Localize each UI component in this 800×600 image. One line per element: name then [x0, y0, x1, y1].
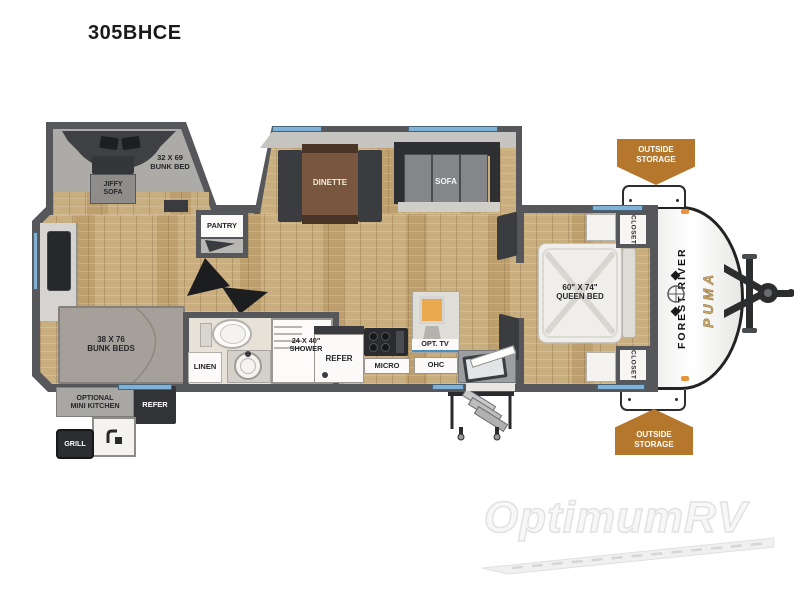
- toilet-bowl-inner: [220, 324, 246, 344]
- marker-light-top: [681, 209, 689, 214]
- sofa-cushion: [460, 154, 488, 204]
- watermark-road-icon: [478, 528, 790, 581]
- window: [33, 232, 38, 290]
- outside-storage-badge-top: OUTSIDE STORAGE: [617, 139, 695, 185]
- grill-label: GRILL: [56, 429, 94, 459]
- burner-icon: [369, 343, 378, 352]
- dinette-bench-left: [278, 150, 302, 222]
- opt-tv-label: OPT. TV: [412, 339, 458, 352]
- faucet-icon: [104, 427, 124, 447]
- linen-label: LINEN: [188, 352, 222, 383]
- sofa-label: SOFA: [430, 176, 462, 188]
- closet-top-label: CLOSET: [630, 215, 637, 244]
- outdoor-refer-label: REFER: [134, 386, 176, 424]
- nightstand: [586, 214, 616, 241]
- toilet-tank: [200, 323, 212, 347]
- closet-bottom: CLOSET: [616, 346, 650, 384]
- closet-bottom-label: CLOSET: [630, 350, 637, 379]
- queen-bed-label: 60" X 74" QUEEN BED: [544, 276, 616, 308]
- shower-drain-icon: [322, 372, 328, 378]
- stove-control-panel: [396, 331, 404, 353]
- entry-steps-icon: [446, 391, 518, 446]
- window: [408, 126, 498, 132]
- bunk-beds-label: 38 X 76 BUNK BEDS: [66, 326, 156, 362]
- tv-icon: [419, 296, 445, 324]
- bunk-room-cabinet: [164, 200, 188, 212]
- burner-icon: [381, 332, 390, 341]
- ohc-label: OHC: [414, 357, 458, 374]
- latch-dot: [675, 398, 678, 401]
- entry-door-opening: [466, 383, 515, 391]
- window: [432, 384, 464, 390]
- burner-icon: [369, 332, 378, 341]
- jiffy-sofa-label: JIFFY SOFA: [90, 174, 136, 204]
- brand-logo-icon: [666, 284, 686, 309]
- sofa-base: [398, 202, 500, 212]
- burner-icon: [381, 343, 390, 352]
- nightstand: [586, 352, 616, 382]
- marker-light-bottom: [681, 376, 689, 381]
- pantry-label: PANTRY: [201, 215, 243, 237]
- bedroom-dresser: [497, 212, 517, 261]
- window: [272, 126, 322, 132]
- rear-tv-icon: [47, 231, 71, 291]
- window: [597, 384, 645, 390]
- latch-dot: [628, 398, 631, 401]
- bunk-bed-label: 32 X 69 BUNK BED: [138, 146, 202, 180]
- dinette-table-end: [302, 144, 358, 153]
- dinette-table-end: [302, 215, 358, 224]
- sofa-armrest: [490, 154, 500, 204]
- dinette-label: DINETTE: [302, 176, 358, 189]
- outside-storage-badge-bottom: OUTSIDE STORAGE: [615, 409, 693, 455]
- bedroom-wall: [516, 213, 524, 263]
- latch-dot: [676, 199, 679, 202]
- floorplan-title: 305BHCE: [88, 20, 248, 46]
- headboard: [622, 248, 636, 338]
- bath-sink-basin: [240, 358, 256, 374]
- jiffy-sofa-back: [92, 156, 134, 174]
- sofa-armrest: [394, 154, 404, 204]
- dinette-bench-right: [358, 150, 382, 222]
- outdoor-sink: [92, 417, 136, 457]
- shower-label: 24 X 40" SHOWER: [280, 330, 332, 360]
- microwave-label: MICRO: [364, 358, 410, 374]
- optional-mini-kitchen-label: OPTIONAL MINI KITCHEN: [56, 387, 134, 417]
- latch-dot: [629, 199, 632, 202]
- window: [592, 205, 643, 211]
- outside-storage-door-top: [622, 185, 686, 207]
- sofa-cushion: [404, 154, 432, 204]
- puma-brand-text: PUMA: [700, 228, 720, 370]
- tv-stand: [423, 326, 441, 340]
- hitch-icon: [722, 252, 794, 343]
- window: [118, 384, 172, 390]
- bath-faucet-icon: [245, 351, 251, 357]
